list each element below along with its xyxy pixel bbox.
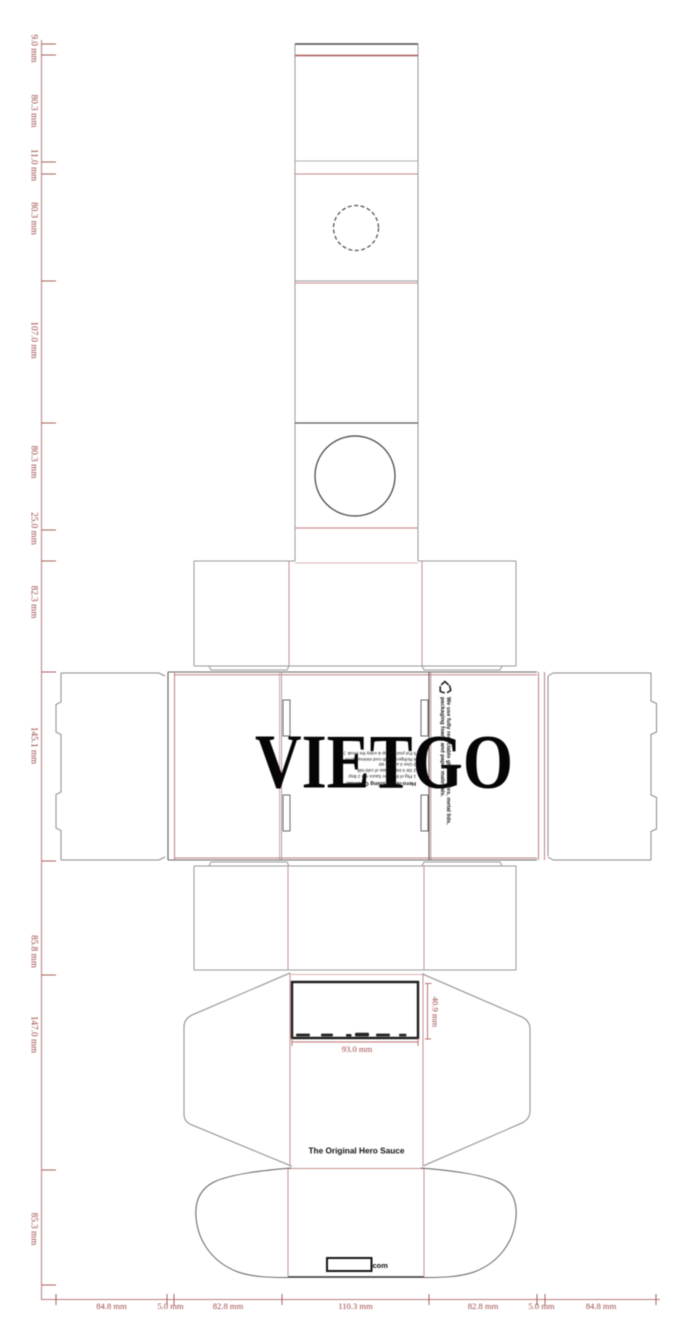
svg-text:147.0 mm: 147.0 mm	[30, 1016, 40, 1053]
svg-text:85.8 mm: 85.8 mm	[30, 935, 40, 968]
svg-text:80.3 mm: 80.3 mm	[30, 202, 40, 235]
svg-text:145.1 mm: 145.1 mm	[30, 727, 40, 764]
svg-text:110.3 mm: 110.3 mm	[338, 1301, 373, 1311]
svg-text:85.3 mm: 85.3 mm	[30, 1213, 40, 1246]
svg-text:84.8 mm: 84.8 mm	[586, 1301, 617, 1311]
svg-text:5.0 mm: 5.0 mm	[528, 1301, 555, 1311]
svg-text:80.3 mm: 80.3 mm	[30, 446, 40, 479]
svg-text:80.3 mm: 80.3 mm	[30, 95, 40, 128]
svg-text:The Original Hero Sauce: The Original Hero Sauce	[309, 1146, 405, 1156]
svg-text:82.8 mm: 82.8 mm	[213, 1301, 244, 1311]
svg-text:84.8 mm: 84.8 mm	[96, 1301, 127, 1311]
svg-text:107.0 mm: 107.0 mm	[30, 321, 40, 358]
svg-text:82.8 mm: 82.8 mm	[468, 1301, 499, 1311]
svg-text:40.9 mm: 40.9 mm	[431, 997, 441, 1028]
svg-text:93.0 mm: 93.0 mm	[342, 1044, 373, 1054]
svg-text:25.0 mm: 25.0 mm	[30, 512, 40, 545]
svg-text:11.0 mm: 11.0 mm	[30, 149, 40, 181]
svg-text:com: com	[373, 1261, 389, 1270]
svg-text:82.3 mm: 82.3 mm	[30, 586, 40, 619]
svg-text:9.0 mm: 9.0 mm	[30, 34, 40, 62]
svg-text:5.0 mm: 5.0 mm	[157, 1301, 184, 1311]
